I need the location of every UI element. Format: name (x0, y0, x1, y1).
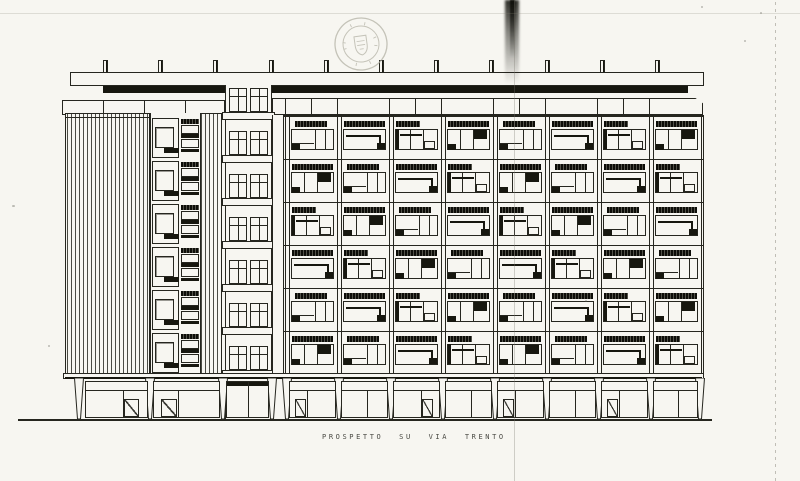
lintel-hatch (396, 121, 420, 127)
window-accent (429, 186, 437, 192)
stair-window-transom (230, 354, 246, 355)
window-mullion (670, 173, 671, 192)
stair-window-transom (251, 139, 267, 140)
lintel-hatch (503, 121, 535, 127)
stair-window-transom (230, 139, 246, 140)
balcony-window (155, 127, 174, 148)
window-edge-shadow (292, 215, 295, 235)
window-rail (346, 307, 379, 309)
window-dark-pane (474, 302, 487, 311)
window-accent (344, 230, 352, 236)
window-mullion (670, 345, 671, 364)
window-accent (632, 141, 643, 149)
window-dark-pane (370, 216, 383, 225)
storefront-divider (575, 391, 576, 417)
paper-fold-line-top (0, 13, 800, 14)
window-accent (396, 230, 404, 236)
paper-fold-line-right (775, 0, 776, 481)
parapet-division (441, 99, 442, 114)
stair-window-mullion (259, 347, 260, 369)
lintel-hatch (552, 250, 576, 256)
window-rail (400, 306, 422, 308)
window-accent (684, 184, 695, 192)
stair-window-mullion (238, 347, 239, 369)
lintel-hatch (500, 164, 541, 170)
stair-window-mullion (238, 304, 239, 326)
service-shaft-pane (181, 125, 199, 134)
window-accent (500, 359, 508, 365)
facade-pilaster (497, 115, 498, 373)
parapet-division (597, 99, 598, 114)
window-mullion (668, 130, 669, 149)
window-mullion (616, 259, 617, 278)
window-edge-shadow (604, 129, 607, 149)
storefront-door (607, 399, 618, 417)
storefront-transom (154, 390, 219, 391)
ground-column (75, 378, 84, 419)
service-shaft-dark (181, 278, 199, 281)
paper-speck (701, 6, 703, 8)
stair-window-transom (230, 311, 246, 312)
lintel-hatch (448, 164, 472, 170)
balcony-door-shadow (164, 148, 179, 153)
window-mullion (679, 259, 680, 278)
window-edge-shadow (344, 258, 347, 278)
window-accent (344, 359, 352, 365)
window-rail (556, 263, 578, 265)
parapet-division (519, 99, 520, 114)
window-edge-shadow (500, 215, 503, 235)
lintel-hatch (503, 293, 535, 299)
window-accent (689, 229, 697, 235)
window-accent (656, 144, 664, 150)
window-accent (632, 313, 643, 321)
lintel-hatch (292, 207, 316, 213)
facade-pilaster (597, 115, 598, 373)
window-mullion (304, 173, 305, 192)
window-mullion (618, 302, 619, 321)
window-mullion (566, 259, 567, 278)
storefront (653, 381, 698, 418)
parapet-division (493, 99, 494, 114)
parapet-division (623, 99, 624, 114)
window-mullion (575, 345, 576, 364)
lintel-hatch (656, 336, 680, 342)
stair-balcony-sill (222, 284, 275, 292)
service-shaft-dark (181, 220, 199, 224)
facade-pilaster (393, 115, 394, 373)
service-shaft-hatch (181, 248, 199, 253)
lintel-hatch (659, 250, 691, 256)
window-accent (448, 273, 456, 279)
window-accent (377, 315, 385, 321)
storefront (341, 381, 388, 418)
service-shaft-hatch (181, 334, 199, 339)
lintel-hatch (451, 250, 483, 256)
window-accent (292, 316, 300, 322)
storefront-divider (678, 391, 679, 417)
storefront-transom (654, 390, 697, 391)
lintel-hatch (555, 164, 587, 170)
stair-window-transom (230, 182, 246, 183)
window-rail (608, 306, 630, 308)
louver-lines (201, 114, 221, 373)
window-rail (452, 349, 474, 351)
window-edge-shadow (552, 258, 555, 278)
window-rail (452, 177, 474, 179)
lintel-hatch (295, 121, 327, 127)
balcony-window (155, 342, 174, 363)
lintel-hatch (295, 293, 327, 299)
window-accent (637, 186, 645, 192)
storefront-door (422, 399, 433, 417)
stair-window-mullion (259, 304, 260, 326)
facade-pilaster (289, 115, 290, 373)
window-accent (396, 273, 404, 279)
window-mullion (356, 216, 357, 235)
window-mullion (575, 173, 576, 192)
storefront-divider (307, 391, 308, 417)
window-rail (450, 221, 483, 223)
window-rail (346, 135, 379, 137)
window-accent (476, 356, 487, 364)
storefront (445, 381, 492, 418)
stair-window-mullion (238, 89, 239, 111)
lintel-hatch (555, 336, 587, 342)
window-rail (504, 220, 526, 222)
window-rail (296, 220, 318, 222)
stair-window-mullion (238, 175, 239, 197)
facade-pilaster (649, 115, 650, 373)
service-shaft-dark (181, 263, 199, 267)
window-dark-pane (422, 259, 435, 268)
window-mullion (637, 216, 638, 235)
storefront-divider (367, 391, 368, 417)
roof-post (434, 60, 439, 73)
lintel-hatch (344, 250, 368, 256)
service-shaft-dark (181, 321, 199, 324)
storefront-divider (619, 391, 620, 417)
window-mullion (689, 259, 690, 278)
roof-post (489, 60, 494, 73)
lintel-hatch (552, 121, 593, 127)
service-shaft-dark (181, 364, 199, 367)
window-rail (400, 134, 422, 136)
window-mullion (408, 259, 409, 278)
stair-window-transom (230, 268, 246, 269)
window-edge-shadow (396, 301, 399, 321)
service-shaft-dark (181, 134, 199, 138)
window-mullion (462, 345, 463, 364)
window-mullion (533, 130, 534, 149)
window-edge-shadow (396, 129, 399, 149)
storefront-divider (178, 391, 179, 417)
lintel-hatch (448, 293, 489, 299)
window-accent (320, 227, 331, 235)
facade-pilaster (701, 115, 702, 373)
service-shaft-dark (181, 149, 199, 152)
balcony-window (155, 213, 174, 234)
stair-window-mullion (259, 132, 260, 154)
storefront-transom (290, 390, 335, 391)
window-mullion (668, 302, 669, 321)
facade-pilaster (341, 115, 342, 373)
window-accent (448, 144, 456, 150)
window-dark-pane (682, 302, 695, 311)
roof-post (600, 60, 605, 73)
storefront-transom (498, 390, 543, 391)
service-shaft-pane (181, 182, 199, 191)
roof-post (269, 60, 274, 73)
paper-speck (744, 40, 746, 42)
window-accent (476, 184, 487, 192)
lintel-hatch (448, 336, 472, 342)
lintel-hatch (500, 336, 541, 342)
window-mullion (367, 345, 368, 364)
window-rail (660, 177, 682, 179)
window-mullion (325, 302, 326, 321)
parapet-division (389, 99, 390, 114)
service-shaft-pane (181, 268, 199, 277)
stair-window-transom (251, 354, 267, 355)
drawing-sheet: PROSPETTO SU VIA TRENTO (0, 0, 800, 481)
window-edge-shadow (448, 172, 451, 192)
roof-post (213, 60, 218, 73)
window-accent (500, 144, 508, 150)
window-edge-shadow (656, 172, 659, 192)
window-dark-pane (474, 130, 487, 139)
louver-lines (67, 114, 148, 373)
window-mullion (377, 173, 378, 192)
window-accent (344, 187, 352, 193)
lintel-hatch (500, 250, 541, 256)
window-mullion (523, 130, 524, 149)
service-shaft-pane (181, 311, 199, 320)
storefront-door (161, 399, 177, 417)
window-dark-pane (526, 173, 539, 182)
window-dark-pane (318, 345, 331, 354)
paper-speck (12, 205, 15, 207)
window-accent (481, 229, 489, 235)
service-shaft-dark (181, 177, 199, 181)
window-accent (604, 273, 612, 279)
lintel-hatch (604, 336, 645, 342)
service-shaft-pane (181, 168, 199, 177)
window-mullion (304, 345, 305, 364)
facade-pilaster (549, 115, 550, 373)
ground-line (18, 419, 712, 421)
window-mullion (358, 259, 359, 278)
parapet-division (415, 99, 416, 114)
wall-pier (272, 115, 283, 373)
window-edge-shadow (448, 344, 451, 364)
window-edge-shadow (604, 301, 607, 321)
facade-pilaster (445, 115, 446, 373)
lintel-hatch (292, 164, 333, 170)
parapet-division (337, 99, 338, 114)
stair-window-transom (230, 96, 246, 97)
stair-window-mullion (259, 89, 260, 111)
window-rail (554, 307, 587, 309)
lintel-hatch (552, 293, 593, 299)
stair-window-transom (251, 268, 267, 269)
roof-shadow-band (103, 86, 688, 93)
parapet-division (311, 99, 312, 114)
parapet-division (649, 99, 650, 114)
window-mullion (419, 216, 420, 235)
window-rail (658, 221, 691, 223)
window-dark-pane (578, 216, 591, 225)
window-mullion (627, 216, 628, 235)
stair-window-mullion (259, 218, 260, 240)
service-shaft-pane (181, 354, 199, 363)
window-edge-shadow (656, 344, 659, 364)
window-dark-pane (318, 173, 331, 182)
stair-window-transom (251, 225, 267, 226)
stair-window-mullion (238, 218, 239, 240)
storefront-transom (394, 390, 439, 391)
window-rail (398, 350, 431, 352)
window-mullion (618, 130, 619, 149)
storefront-door (295, 399, 306, 417)
service-shaft-pane (181, 254, 199, 263)
window-rail (660, 349, 682, 351)
window-rail (606, 178, 639, 180)
facade-pilaster (601, 115, 602, 373)
stair-window-mullion (238, 261, 239, 283)
lintel-hatch (347, 336, 379, 342)
paper-speck (48, 345, 50, 347)
window-mullion (460, 302, 461, 321)
storefront (549, 381, 596, 418)
window-accent (424, 141, 435, 149)
window-accent (552, 187, 560, 193)
lintel-hatch (604, 164, 645, 170)
lintel-hatch (344, 207, 385, 213)
window-accent (292, 359, 300, 365)
storefront-transom (86, 390, 147, 391)
lintel-hatch (604, 250, 645, 256)
window-accent (604, 230, 612, 236)
window-rail (606, 350, 639, 352)
service-shaft-hatch (181, 205, 199, 210)
storefront-divider (515, 391, 516, 417)
service-shaft-pane (181, 139, 199, 148)
service-shaft-dark (181, 192, 199, 195)
service-shaft-dark (181, 349, 199, 353)
window-mullion (523, 302, 524, 321)
window-mullion (460, 130, 461, 149)
window-mullion (410, 302, 411, 321)
window-mullion (410, 130, 411, 149)
storefront-door (503, 399, 514, 417)
storefront-door (124, 399, 139, 417)
lintel-hatch (396, 164, 437, 170)
lintel-hatch (604, 293, 628, 299)
window-accent (448, 316, 456, 322)
window-rail (398, 178, 431, 180)
stair-window-mullion (259, 261, 260, 283)
window-accent (580, 270, 591, 278)
stair-balcony-sill (222, 155, 275, 163)
stair-window-transom (251, 311, 267, 312)
facade-pilaster (441, 115, 442, 373)
roof-post (545, 60, 550, 73)
paper-speck (585, 300, 587, 302)
service-shaft-hatch (181, 119, 199, 124)
window-mullion (471, 259, 472, 278)
storefront-transom (342, 390, 387, 391)
window-accent (656, 316, 664, 322)
storefront-divider (248, 382, 249, 417)
window-accent (552, 230, 560, 236)
paper-fold-line-center (514, 0, 515, 481)
louver-top-line (65, 117, 150, 118)
window-rail (554, 135, 587, 137)
storefront-transom (602, 390, 647, 391)
window-dark-pane (526, 345, 539, 354)
window-mullion (315, 130, 316, 149)
lintel-hatch (347, 164, 379, 170)
window-accent (533, 272, 541, 278)
window-mullion (462, 173, 463, 192)
window-accent (429, 358, 437, 364)
lintel-hatch (656, 207, 697, 213)
lintel-hatch (448, 121, 489, 127)
window-mullion (377, 345, 378, 364)
parapet-division (545, 99, 546, 114)
window-rail (294, 264, 327, 266)
window-accent (292, 144, 300, 150)
window-accent (377, 143, 385, 149)
window-accent (424, 313, 435, 321)
window-rail (348, 263, 370, 265)
lintel-hatch (656, 121, 697, 127)
drawing-caption: PROSPETTO SU VIA TRENTO (322, 433, 502, 441)
lintel-hatch (448, 207, 489, 213)
balcony-door-shadow (164, 277, 179, 282)
window-mullion (585, 345, 586, 364)
storefront-divider (471, 391, 472, 417)
balcony-door-shadow (164, 363, 179, 368)
lintel-hatch (344, 293, 385, 299)
service-shaft-hatch (181, 291, 199, 296)
balcony-door-shadow (164, 234, 179, 239)
window-accent (637, 358, 645, 364)
lintel-hatch (552, 207, 593, 213)
lintel-hatch (656, 164, 680, 170)
window-accent (656, 273, 664, 279)
stair-window-mullion (238, 132, 239, 154)
window-accent (585, 143, 593, 149)
window-mullion (325, 130, 326, 149)
roof-slab (70, 72, 704, 86)
window-mullion (315, 302, 316, 321)
window-accent (292, 187, 300, 193)
storefront-transom (446, 390, 491, 391)
service-shaft-dark (181, 235, 199, 238)
window-accent (500, 187, 508, 193)
window-accent (372, 270, 383, 278)
lintel-hatch (604, 121, 628, 127)
lintel-hatch (396, 293, 420, 299)
lintel-hatch (500, 207, 524, 213)
facade-pilaster (337, 115, 338, 373)
service-shaft-pane (181, 211, 199, 220)
facade-pilaster (389, 115, 390, 373)
window-dark-pane (682, 130, 695, 139)
window-mullion (564, 216, 565, 235)
